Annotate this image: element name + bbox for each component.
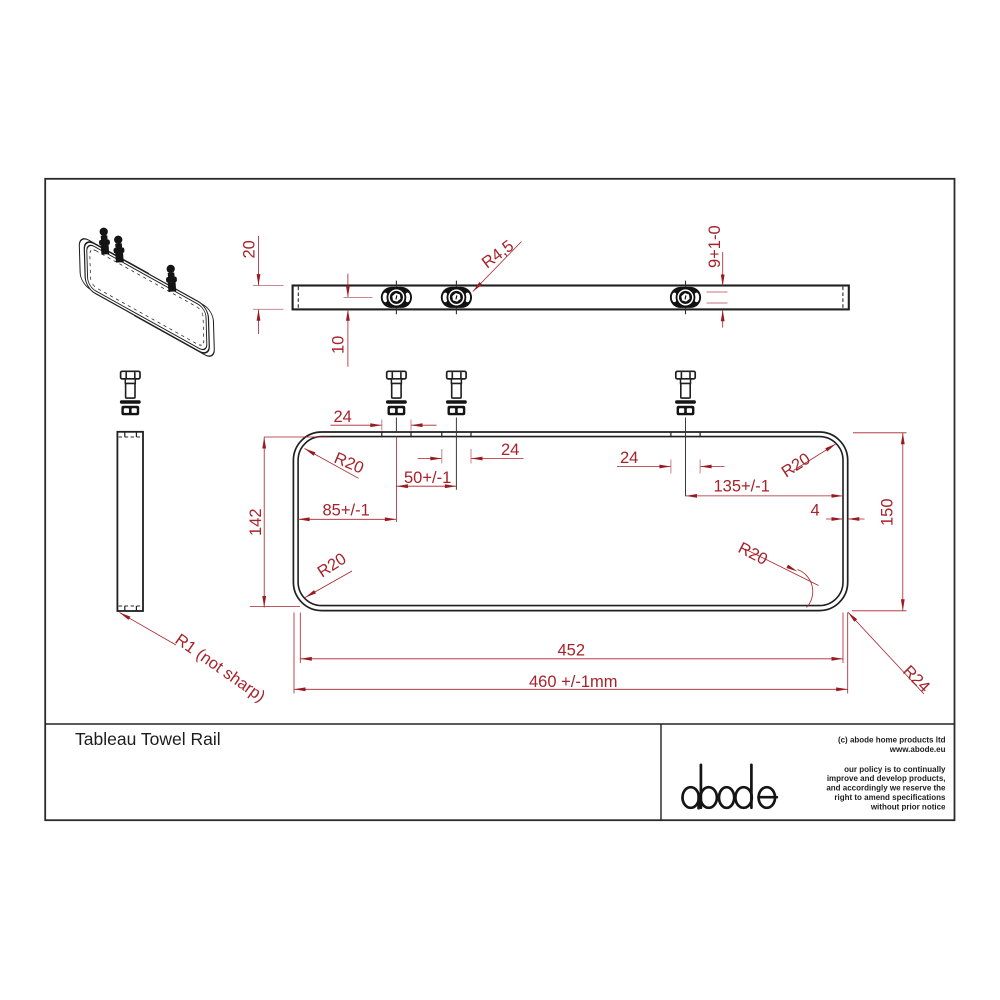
svg-text:right to amend specifications: right to amend specifications [834, 793, 946, 802]
svg-text:our policy is to continually: our policy is to continually [844, 765, 946, 774]
svg-text:85+/-1: 85+/-1 [323, 502, 370, 520]
svg-text:142: 142 [247, 508, 265, 536]
svg-text:4: 4 [811, 502, 820, 520]
svg-text:24: 24 [620, 449, 638, 467]
svg-text:24: 24 [501, 441, 519, 459]
svg-text:improve and develop products,: improve and develop products, [827, 774, 946, 783]
svg-text:50+/-1: 50+/-1 [404, 469, 451, 487]
svg-text:150: 150 [879, 498, 897, 526]
svg-text:24: 24 [334, 408, 352, 426]
svg-text:460 +/-1mm: 460 +/-1mm [529, 673, 618, 691]
svg-text:Tableau Towel Rail: Tableau Towel Rail [75, 729, 221, 749]
svg-text:9+1-0: 9+1-0 [706, 225, 724, 268]
svg-text:(c) abode home products ltd: (c) abode home products ltd [838, 736, 946, 745]
svg-text:www.abode.eu: www.abode.eu [889, 745, 946, 754]
svg-text:without prior notice: without prior notice [870, 802, 946, 811]
svg-text:135+/-1: 135+/-1 [714, 478, 770, 496]
svg-text:10: 10 [330, 336, 348, 354]
svg-text:452: 452 [558, 642, 586, 660]
svg-text:20: 20 [241, 240, 259, 258]
svg-text:and accordingly we reserve the: and accordingly we reserve the [826, 784, 946, 793]
